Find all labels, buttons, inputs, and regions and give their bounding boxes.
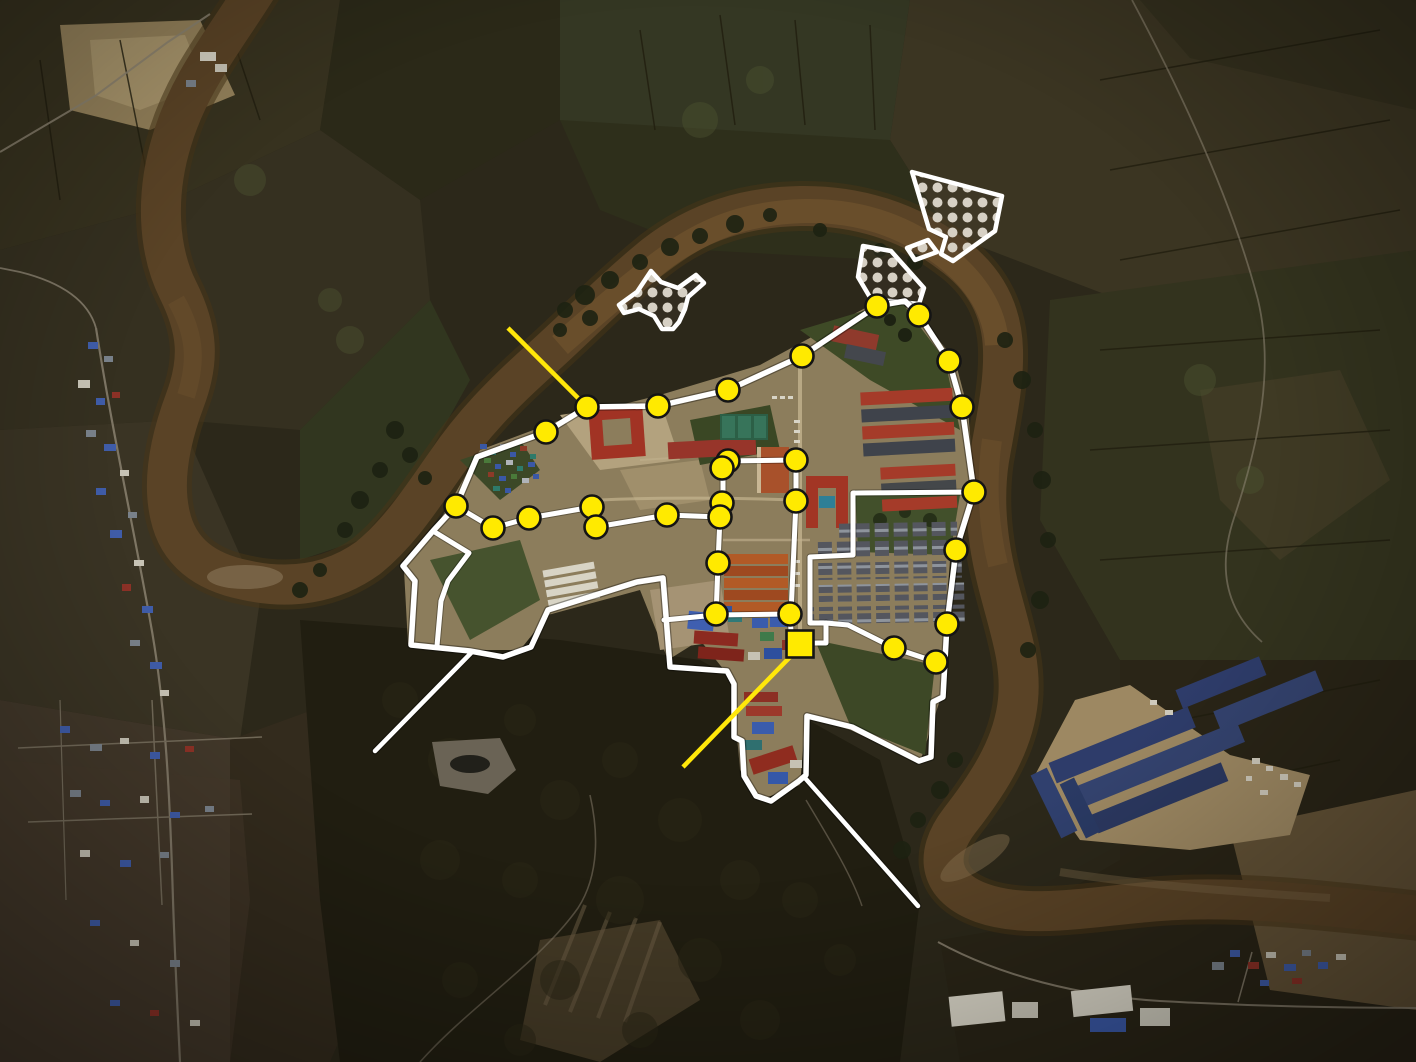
map-marker-15 bbox=[656, 504, 679, 527]
map-marker-24 bbox=[936, 613, 959, 636]
map-marker-25 bbox=[883, 637, 906, 660]
map-marker-26 bbox=[925, 651, 948, 674]
map-marker-3 bbox=[791, 345, 814, 368]
map-marker-2 bbox=[717, 379, 740, 402]
map-marker-4 bbox=[866, 295, 889, 318]
map-marker-22 bbox=[707, 552, 730, 575]
highlight-square bbox=[787, 631, 814, 658]
map-marker-6 bbox=[938, 350, 961, 373]
map-marker-28 bbox=[779, 603, 802, 626]
map-marker-9 bbox=[535, 421, 558, 444]
map-marker-27 bbox=[705, 603, 728, 626]
map-marker-21 bbox=[709, 506, 732, 529]
map-marker-11 bbox=[482, 517, 505, 540]
map-marker-17 bbox=[711, 457, 734, 480]
map-marker-10 bbox=[445, 495, 468, 518]
satellite-map bbox=[0, 0, 1416, 1062]
map-marker-18 bbox=[785, 449, 808, 472]
map-marker-14 bbox=[585, 516, 608, 539]
map-marker-1 bbox=[647, 395, 670, 418]
map-marker-19 bbox=[785, 490, 808, 513]
map-marker-0 bbox=[576, 396, 599, 419]
map-marker-7 bbox=[951, 396, 974, 419]
map-marker-12 bbox=[518, 507, 541, 530]
satellite-map-canvas bbox=[0, 0, 1416, 1062]
map-marker-5 bbox=[908, 304, 931, 327]
vignette bbox=[0, 0, 1416, 1062]
map-marker-8 bbox=[963, 481, 986, 504]
map-marker-23 bbox=[945, 539, 968, 562]
